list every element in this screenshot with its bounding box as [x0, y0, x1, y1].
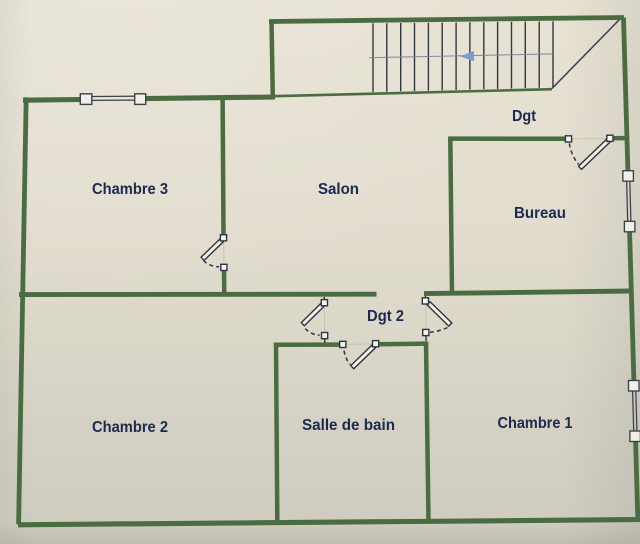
svg-text:Bureau: Bureau — [514, 205, 566, 222]
svg-text:Dgt: Dgt — [512, 108, 537, 125]
svg-text:Chambre 1: Chambre 1 — [498, 415, 573, 432]
svg-text:Salon: Salon — [318, 181, 359, 198]
svg-text:Salle de bain: Salle de bain — [302, 417, 395, 434]
svg-text:Chambre 2: Chambre 2 — [92, 419, 168, 436]
svg-text:Dgt 2: Dgt 2 — [367, 308, 404, 325]
svg-text:Chambre 3: Chambre 3 — [92, 181, 168, 198]
